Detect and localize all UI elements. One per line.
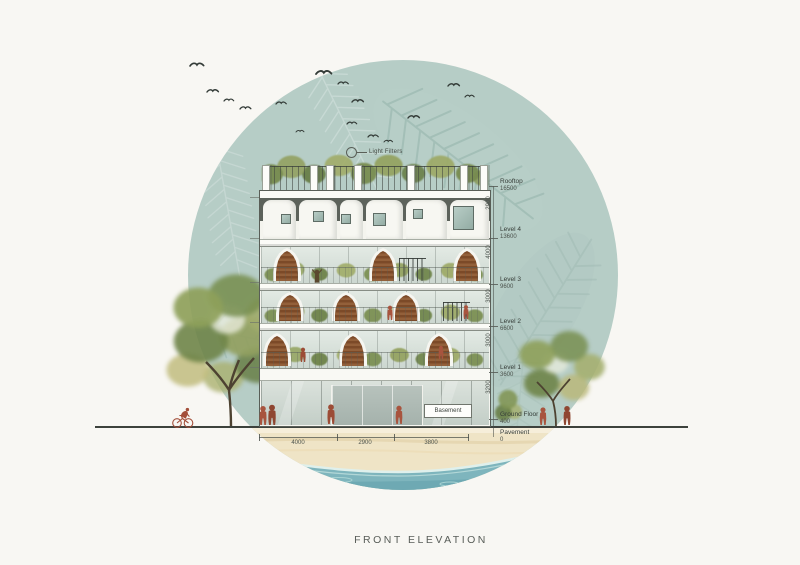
drawing-title: FRONT ELEVATION [281, 534, 561, 546]
architectural-elevation-drawing: Light Filters Basement Rooftop 16500 Lev… [0, 0, 800, 565]
cyclist [173, 408, 193, 427]
figure-arms-up [312, 270, 322, 283]
people [260, 270, 571, 426]
figures-and-birds-overlay [0, 0, 800, 565]
birds [190, 63, 474, 142]
